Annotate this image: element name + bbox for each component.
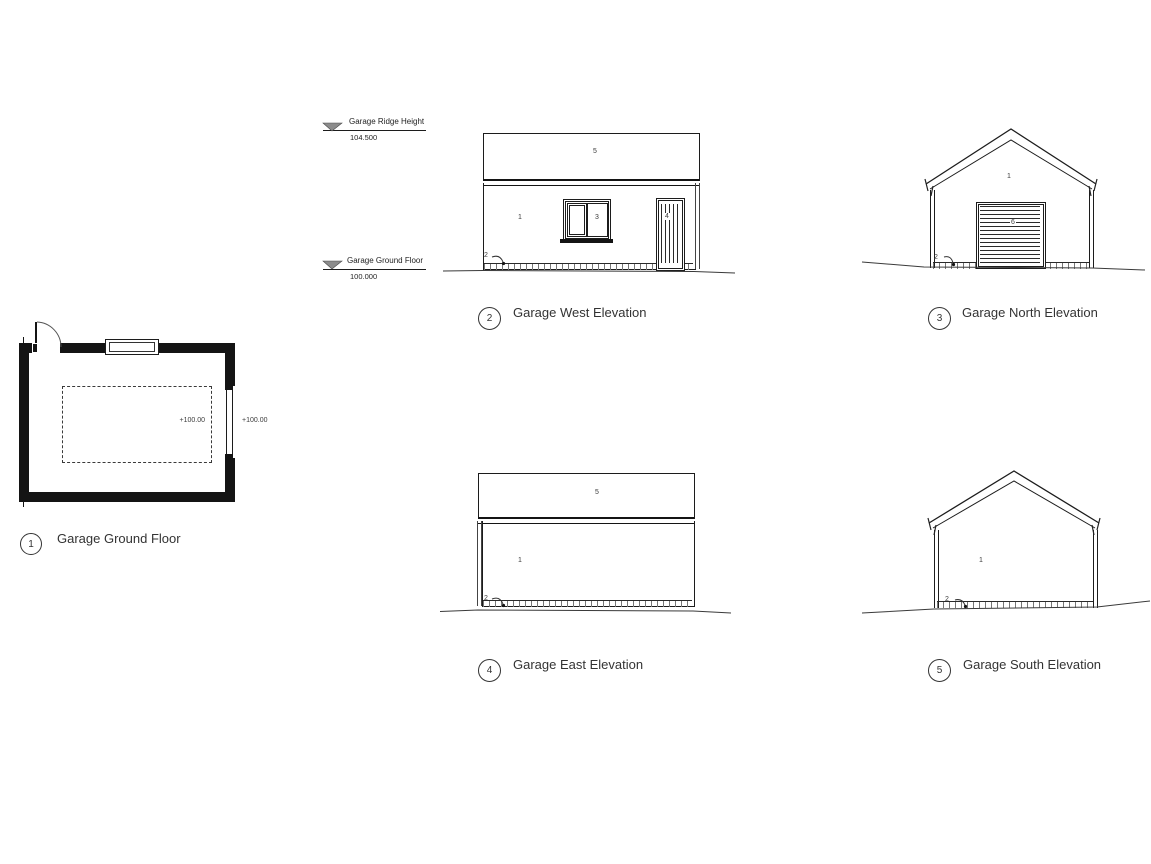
plan-wall-left xyxy=(19,343,29,502)
north-garage-door-slats xyxy=(980,206,1040,263)
level-line-ridge xyxy=(323,130,426,131)
plan-view-number-text: 1 xyxy=(28,539,34,550)
west-window-casement xyxy=(569,205,585,235)
south-roof-inner xyxy=(933,481,1095,528)
north-view-title: Garage North Elevation xyxy=(962,305,1098,321)
west-tag-roof: 5 xyxy=(593,148,597,155)
level-triangle-ground-icon xyxy=(323,261,342,269)
plan-roof-outline-dashed xyxy=(62,386,212,463)
east-tag-wall: 1 xyxy=(518,557,522,564)
east-ground-line xyxy=(440,610,731,613)
level-line-ground xyxy=(323,269,426,270)
south-view-number-text: 5 xyxy=(937,665,943,676)
east-view-number-text: 4 xyxy=(487,665,493,676)
south-roof-outer xyxy=(929,471,1099,523)
north-wall-right xyxy=(1089,190,1094,268)
east-roof xyxy=(478,473,695,519)
north-tag-ground: 2 xyxy=(934,254,938,261)
west-view-title: Garage West Elevation xyxy=(513,305,646,321)
south-view-title: Garage South Elevation xyxy=(963,657,1101,673)
plan-corner-tick-top xyxy=(23,337,24,343)
east-view-number: 4 xyxy=(478,659,501,682)
plan-view-number: 1 xyxy=(20,533,42,555)
plan-spot-level-inside: +100.00 xyxy=(167,417,205,424)
north-view-number-text: 3 xyxy=(937,313,943,324)
plan-door-swing-arc xyxy=(37,322,61,347)
west-view-number-text: 2 xyxy=(487,313,493,324)
plan-view-title: Garage Ground Floor xyxy=(57,531,181,547)
level-label-ground: Garage Ground Floor xyxy=(347,257,423,265)
level-label-ridge: Garage Ridge Height xyxy=(349,118,424,126)
east-downpipe xyxy=(477,521,482,606)
west-window-sill xyxy=(560,239,613,243)
north-tag-wall: 1 xyxy=(1007,173,1011,180)
east-tag-ground: 2 xyxy=(484,595,488,602)
plan-wall-bottom xyxy=(19,492,235,502)
plan-garage-door-leaf xyxy=(226,390,233,454)
north-roof-outer xyxy=(926,129,1096,184)
south-tag-ground: 2 xyxy=(945,596,949,603)
south-wall-right xyxy=(1093,530,1098,608)
plan-wall-right-upper xyxy=(225,343,235,386)
drawing-sheet: Garage Ridge Height 104.500 Garage Groun… xyxy=(0,0,1151,864)
east-wall xyxy=(482,521,695,607)
plan-wall-top-right xyxy=(157,343,235,353)
south-tag-wall: 1 xyxy=(979,557,983,564)
plan-entry-door-hinge xyxy=(33,344,37,352)
plan-corner-tick-bottom xyxy=(23,502,24,507)
north-view-number: 3 xyxy=(928,307,951,330)
west-downpipe xyxy=(695,183,700,269)
west-tag-wall: 1 xyxy=(518,214,522,221)
east-plinth xyxy=(483,600,692,607)
north-roof-inner xyxy=(930,140,1092,189)
plan-wall-right-lower xyxy=(225,458,235,502)
north-tag-garage-door: 6 xyxy=(1010,219,1016,226)
plan-wall-top-mid xyxy=(60,343,105,353)
east-view-title: Garage East Elevation xyxy=(513,657,643,673)
plan-window-frame xyxy=(109,342,155,352)
west-ground-line xyxy=(443,271,735,274)
west-view-number: 2 xyxy=(478,307,501,330)
south-wall-left xyxy=(934,530,939,608)
plan-garage-jamb-bottom xyxy=(225,454,233,458)
plan-entry-door-leaf xyxy=(35,322,37,343)
level-value-ridge: 104.500 xyxy=(350,134,377,142)
west-tag-door: 4 xyxy=(664,213,670,220)
level-value-ground: 100.000 xyxy=(350,273,377,281)
west-roof xyxy=(483,133,700,181)
plan-spot-level-outside: +100.00 xyxy=(242,417,268,424)
west-tag-window: 3 xyxy=(595,214,599,221)
south-view-number: 5 xyxy=(928,659,951,682)
south-plinth xyxy=(937,601,1093,608)
north-plinth-right xyxy=(1044,262,1089,269)
north-plinth-left xyxy=(933,262,976,269)
east-tag-roof: 5 xyxy=(595,489,599,496)
west-tag-ground: 2 xyxy=(484,252,488,259)
